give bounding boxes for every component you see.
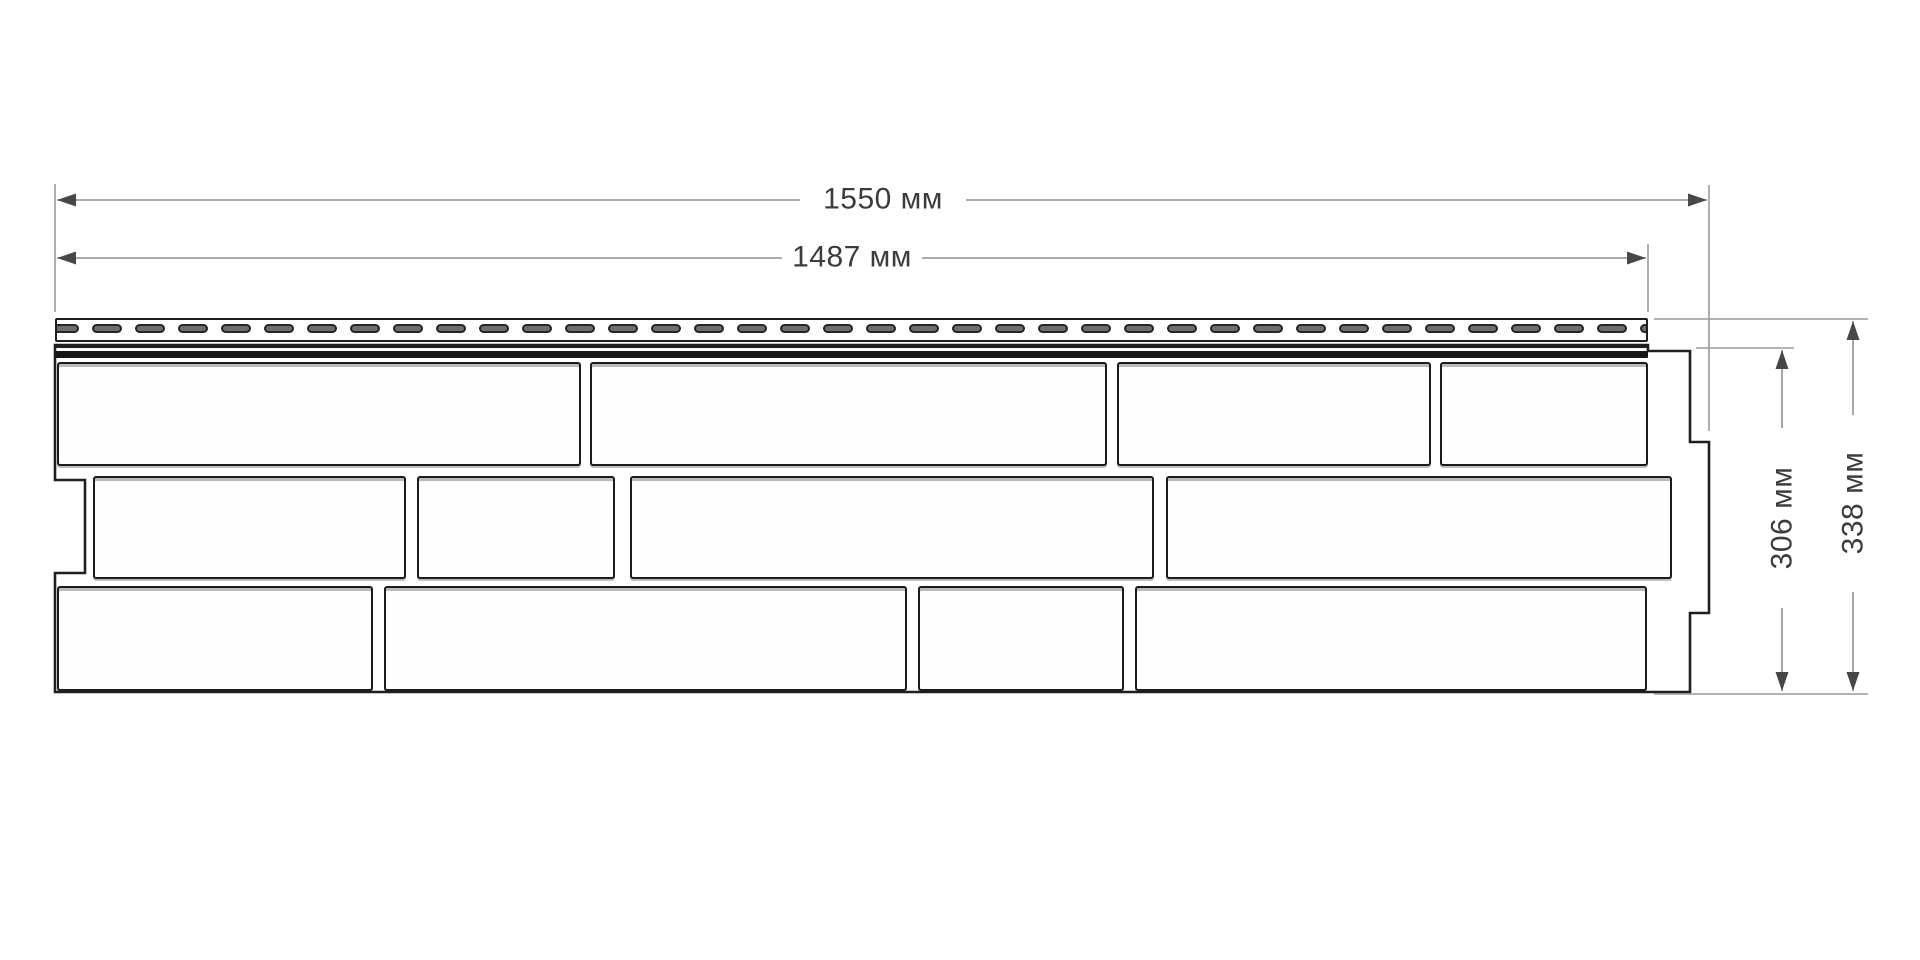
nail-slot [350,324,380,333]
nail-slot [1253,324,1283,333]
label-working-width: 1487 мм [782,241,922,274]
nail-slot [178,324,208,333]
nail-slot [55,324,79,333]
nail-slot [436,324,466,333]
label-panel-height: 306 мм [1766,459,1799,578]
brick-row2 [1166,476,1672,579]
nail-slot [92,324,122,333]
nail-slot [866,324,896,333]
nail-slot [694,324,724,333]
nail-slot [565,324,595,333]
nail-slot [780,324,810,333]
nail-slot [1597,324,1627,333]
lock-band [55,351,1648,358]
nail-slot [909,324,939,333]
nail-slot [393,324,423,333]
brick-row2 [93,476,406,579]
label-total-width: 1550 мм [813,183,953,216]
nail-slot [952,324,982,333]
brick-row3 [384,586,907,691]
nail-slot [1081,324,1111,333]
nail-slot [1640,324,1648,333]
label-total-height: 338 мм [1837,444,1870,563]
brick-row1 [590,362,1107,466]
drawing-canvas: 1550 мм 1487 мм 306 мм 338 мм [0,0,1920,960]
nail-slot [1554,324,1584,333]
nail-slot [1124,324,1154,333]
brick-row3 [1135,586,1647,691]
nail-slot [1210,324,1240,333]
nail-slot [1382,324,1412,333]
nail-slot [1296,324,1326,333]
nail-slot [1167,324,1197,333]
brick-row2 [417,476,615,579]
nail-slot [823,324,853,333]
nail-slot [522,324,552,333]
nail-slot [221,324,251,333]
nail-strip [55,318,1648,342]
brick-row1 [1117,362,1431,466]
brick-row1 [1440,362,1648,466]
nail-slot [1511,324,1541,333]
brick-row1 [57,362,581,466]
nail-slot [1339,324,1369,333]
brick-row3 [57,586,373,691]
lock-seam-line [55,346,1648,348]
nail-slot [135,324,165,333]
nail-slot [995,324,1025,333]
brick-row2 [630,476,1154,579]
nail-slot [479,324,509,333]
nail-slot [608,324,638,333]
brick-row3 [918,586,1124,691]
nail-slot [307,324,337,333]
nail-slot [264,324,294,333]
nail-slot [651,324,681,333]
nail-slot [737,324,767,333]
nail-slot [1038,324,1068,333]
nail-slot [1468,324,1498,333]
nail-slot [1425,324,1455,333]
